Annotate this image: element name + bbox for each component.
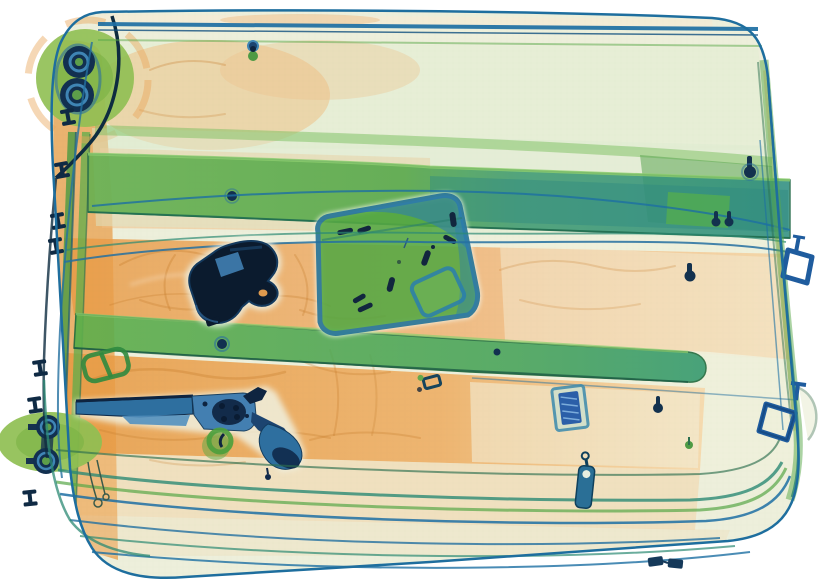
xray-suitcase-svg [0, 0, 824, 586]
ammo-box [318, 195, 478, 333]
revolver-cylinder [212, 399, 246, 425]
d-ring-upper [783, 236, 812, 283]
dense-item [552, 385, 589, 431]
zipper-sliders [648, 556, 684, 569]
xray-scan-image [0, 0, 824, 586]
